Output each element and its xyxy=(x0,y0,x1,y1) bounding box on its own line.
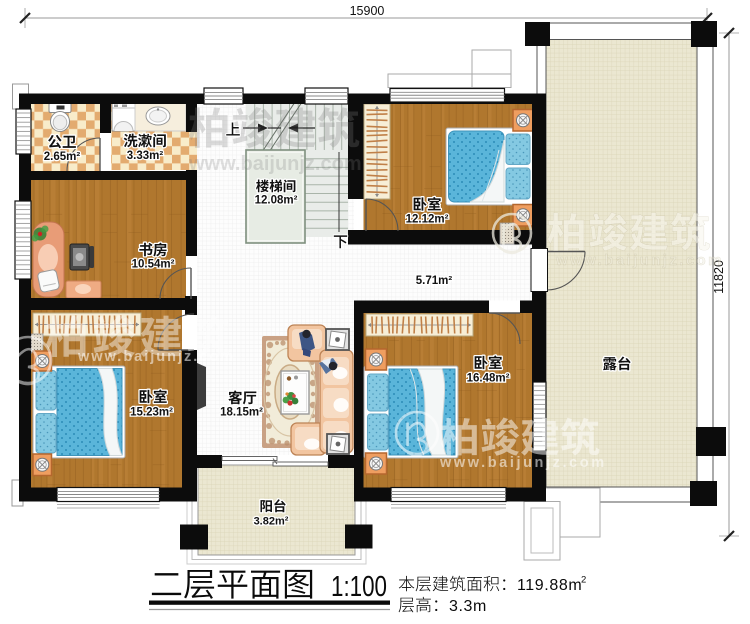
svg-text:10.54m²: 10.54m² xyxy=(132,259,175,271)
svg-text:5.71m²: 5.71m² xyxy=(416,275,453,287)
svg-text:www.baijunjz.com: www.baijunjz.com xyxy=(555,252,724,269)
svg-text:15900: 15900 xyxy=(350,4,385,18)
svg-text:3.3m: 3.3m xyxy=(449,598,487,615)
svg-text:3.82m²: 3.82m² xyxy=(254,516,289,528)
svg-text:1:100: 1:100 xyxy=(331,571,387,603)
svg-text:2.65m²: 2.65m² xyxy=(44,151,81,163)
svg-text:16.48m²: 16.48m² xyxy=(467,373,510,385)
svg-text:3.33m²: 3.33m² xyxy=(127,150,164,162)
svg-text:12.12m²: 12.12m² xyxy=(406,214,449,226)
svg-text:www.baijunjz.com: www.baijunjz.com xyxy=(439,455,607,471)
svg-text:12.08m²: 12.08m² xyxy=(255,195,298,207)
svg-text:2: 2 xyxy=(581,575,586,586)
svg-text:15.23m²: 15.23m² xyxy=(130,407,173,419)
svg-text:www.baijunjz.com: www.baijunjz.com xyxy=(77,349,235,365)
svg-text:www.baijunjz.com: www.baijunjz.com xyxy=(188,153,362,175)
svg-text:119.88m: 119.88m xyxy=(517,577,582,594)
svg-text:18.15m²: 18.15m² xyxy=(220,407,263,419)
